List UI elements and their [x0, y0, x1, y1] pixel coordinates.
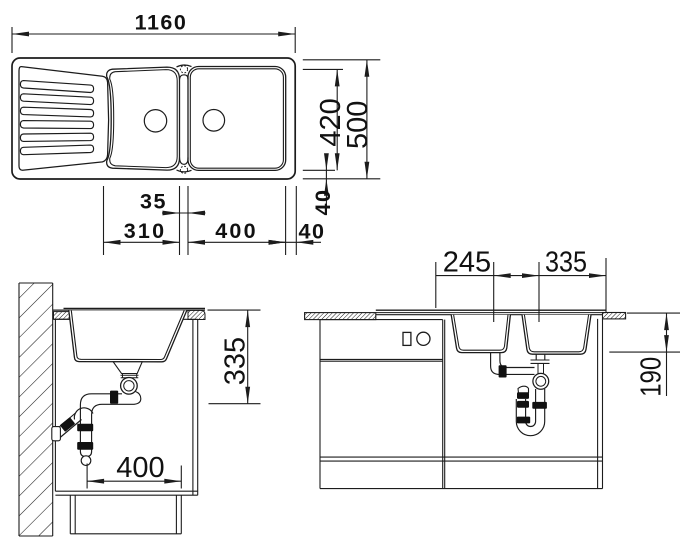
svg-text:1160: 1160 — [135, 11, 188, 35]
svg-text:335: 335 — [545, 247, 587, 279]
svg-text:335: 335 — [220, 337, 252, 385]
svg-text:35: 35 — [140, 190, 167, 214]
svg-text:500: 500 — [342, 101, 374, 149]
svg-text:190: 190 — [636, 357, 668, 397]
svg-text:400: 400 — [215, 219, 257, 243]
svg-text:245: 245 — [443, 247, 491, 279]
svg-text:40: 40 — [311, 189, 335, 216]
svg-text:310: 310 — [124, 219, 166, 243]
svg-text:400: 400 — [116, 452, 164, 484]
svg-text:40: 40 — [299, 220, 326, 244]
